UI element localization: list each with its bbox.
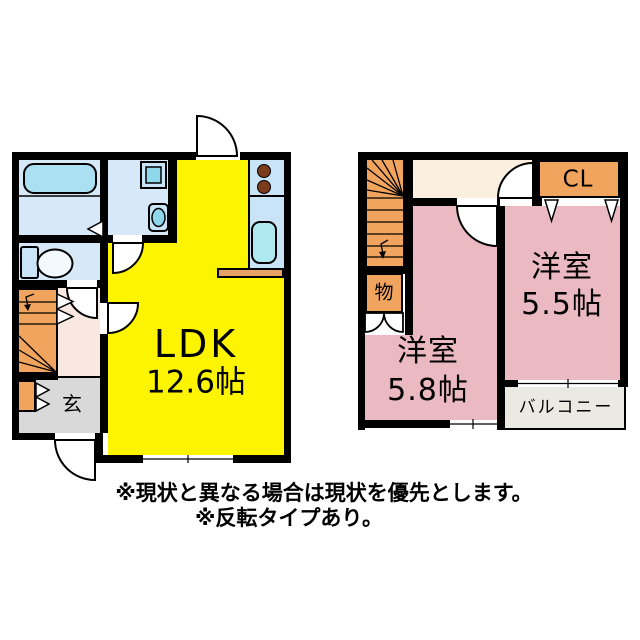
door-swing-icon bbox=[457, 206, 497, 246]
stairs-icon bbox=[367, 160, 403, 257]
label-storage: 物 bbox=[374, 284, 393, 303]
stairs-arrow-icon bbox=[379, 251, 386, 259]
closet-door-icon bbox=[605, 200, 618, 221]
toilet-icon bbox=[38, 250, 73, 278]
kitchen-sink-icon bbox=[252, 222, 276, 263]
door-swing-icon bbox=[197, 116, 237, 156]
label-room-55: 洋室 bbox=[531, 253, 593, 283]
label-balcony: バルコニー bbox=[519, 400, 614, 417]
door-swing-icon bbox=[498, 163, 533, 198]
label-room-58: 洋室 bbox=[397, 337, 459, 367]
window-icon bbox=[143, 455, 233, 463]
folding-door-icon bbox=[36, 383, 49, 411]
door-swing-icon bbox=[384, 313, 403, 332]
door-swing-icon bbox=[365, 313, 384, 332]
closet-door-icon bbox=[545, 200, 558, 221]
label-genkan: 玄 bbox=[62, 394, 82, 414]
label-ldk-size: 12.6帖 bbox=[146, 368, 246, 399]
folding-door-icon bbox=[88, 221, 103, 237]
label-room-58-size: 5.8帖 bbox=[387, 376, 469, 406]
disclaimer-line2: ※反転タイプあり。 bbox=[195, 502, 383, 532]
label-ldk: LDK bbox=[154, 325, 238, 363]
bathtub-icon bbox=[24, 164, 96, 193]
stove-burners-icon bbox=[258, 181, 271, 194]
washbasin-icon bbox=[152, 209, 165, 227]
floorplan-canvas: LDK 12.6帖 玄 洋室 5.8帖 洋室 5.5帖 CL 物 バルコニー ※… bbox=[0, 0, 640, 640]
door-swing-icon bbox=[108, 303, 138, 333]
washing-machine-icon bbox=[146, 167, 161, 183]
door-swing-icon bbox=[113, 243, 143, 273]
label-closet: CL bbox=[563, 169, 594, 192]
label-room-55-size: 5.5帖 bbox=[521, 290, 603, 320]
stove-burners-icon bbox=[258, 165, 271, 178]
stairs-arrow-icon bbox=[24, 304, 31, 311]
toilet-icon bbox=[21, 247, 38, 278]
door-swing-icon bbox=[55, 440, 95, 480]
